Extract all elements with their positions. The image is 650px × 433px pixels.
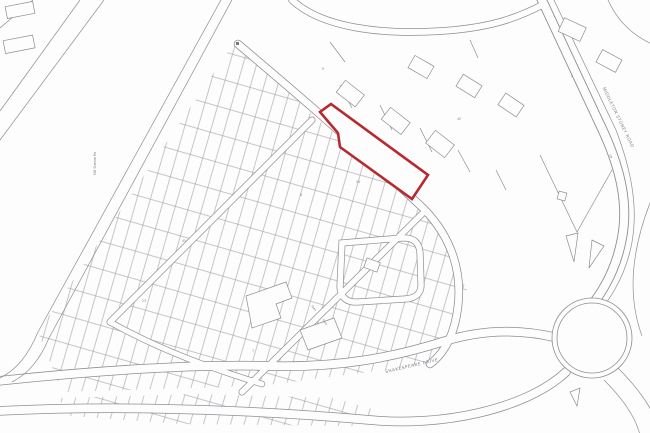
house-number: 40 [457, 117, 461, 121]
house-number: 7 [252, 349, 254, 353]
house-number: 9 [322, 67, 324, 71]
house-number: 45 [182, 239, 186, 243]
map-canvas: MIDDLETON STONEY ROAD SHAKESPEARE DRIVE … [0, 0, 650, 433]
field-road-label: Mill Stream Rd [93, 152, 97, 175]
house-number: 8 [300, 193, 302, 197]
site-plan-map: MIDDLETON STONEY ROAD SHAKESPEARE DRIVE … [0, 0, 650, 433]
house-number: 34 [356, 180, 360, 184]
house-number: 2 [571, 74, 573, 78]
house-number: 23 [142, 299, 146, 303]
